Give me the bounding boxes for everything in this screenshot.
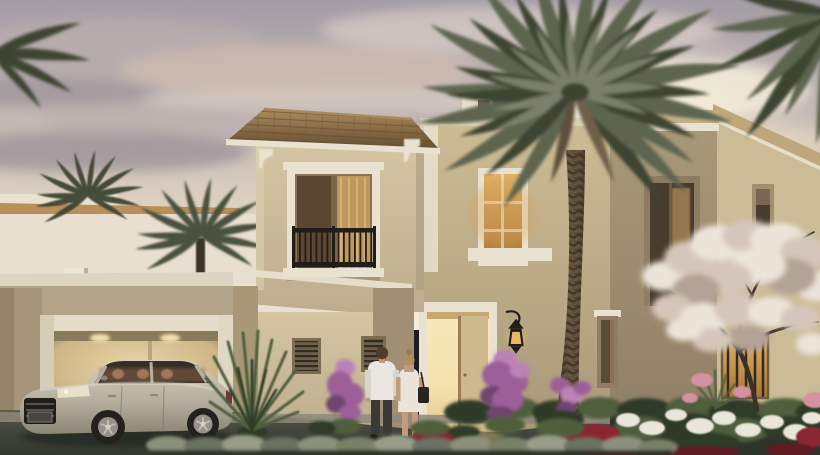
garage-header (40, 315, 233, 331)
woman-arm (396, 377, 401, 401)
garage-ceiling-light (90, 334, 110, 342)
garage-ceiling-shadow (54, 331, 218, 341)
car-license-plate (28, 412, 52, 422)
car-seats (112, 369, 173, 379)
door-jamb (419, 302, 427, 434)
car-b-pillar (151, 362, 152, 383)
garage-ceiling-light (160, 334, 180, 342)
door-handle (463, 373, 466, 376)
door-header-trim (419, 302, 497, 312)
woman-head (404, 355, 415, 366)
car-door-handle (150, 394, 158, 396)
man-leg (383, 398, 392, 434)
man-head (376, 347, 388, 359)
man-leg (371, 398, 380, 434)
juliet-railing (292, 226, 376, 268)
car-rear-wheel (187, 408, 219, 440)
villa-dusk-rendering (0, 0, 820, 455)
woman-hair-bun (406, 349, 412, 355)
car-front-wheel (91, 410, 125, 444)
handbag (418, 387, 429, 403)
man-shirt (368, 361, 396, 400)
woman-shoulders (404, 365, 414, 372)
car-mirror (101, 376, 108, 381)
slot-window (594, 310, 621, 388)
balcony-window (283, 162, 384, 281)
villa-rendering-figure: Twilight architectural rendering of a tw… (0, 0, 820, 455)
woman-leg (402, 410, 408, 437)
man-arm (365, 370, 371, 398)
tower-ledge (468, 248, 552, 261)
car-door-handle (108, 395, 116, 397)
background-palm-trunk (196, 238, 205, 278)
